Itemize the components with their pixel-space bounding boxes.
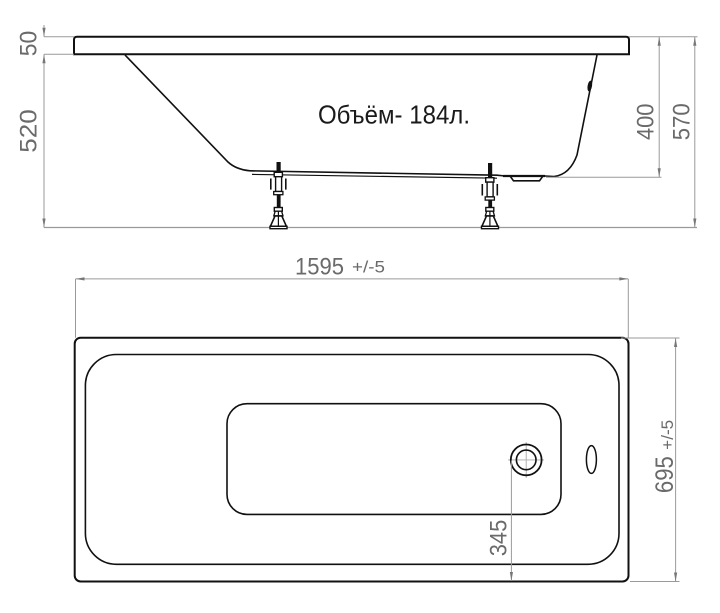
svg-text:400: 400 [633, 104, 660, 141]
svg-text:345: 345 [486, 520, 513, 557]
svg-text:570: 570 [669, 103, 696, 140]
svg-text:520: 520 [16, 109, 43, 153]
svg-text:Объём- 184л.: Объём- 184л. [318, 100, 470, 130]
svg-text:50: 50 [16, 31, 43, 57]
svg-text:+/-5: +/-5 [352, 259, 385, 277]
svg-text:695: 695 [651, 456, 679, 493]
svg-text:1595: 1595 [295, 254, 344, 281]
svg-text:+/-5: +/-5 [658, 420, 677, 450]
